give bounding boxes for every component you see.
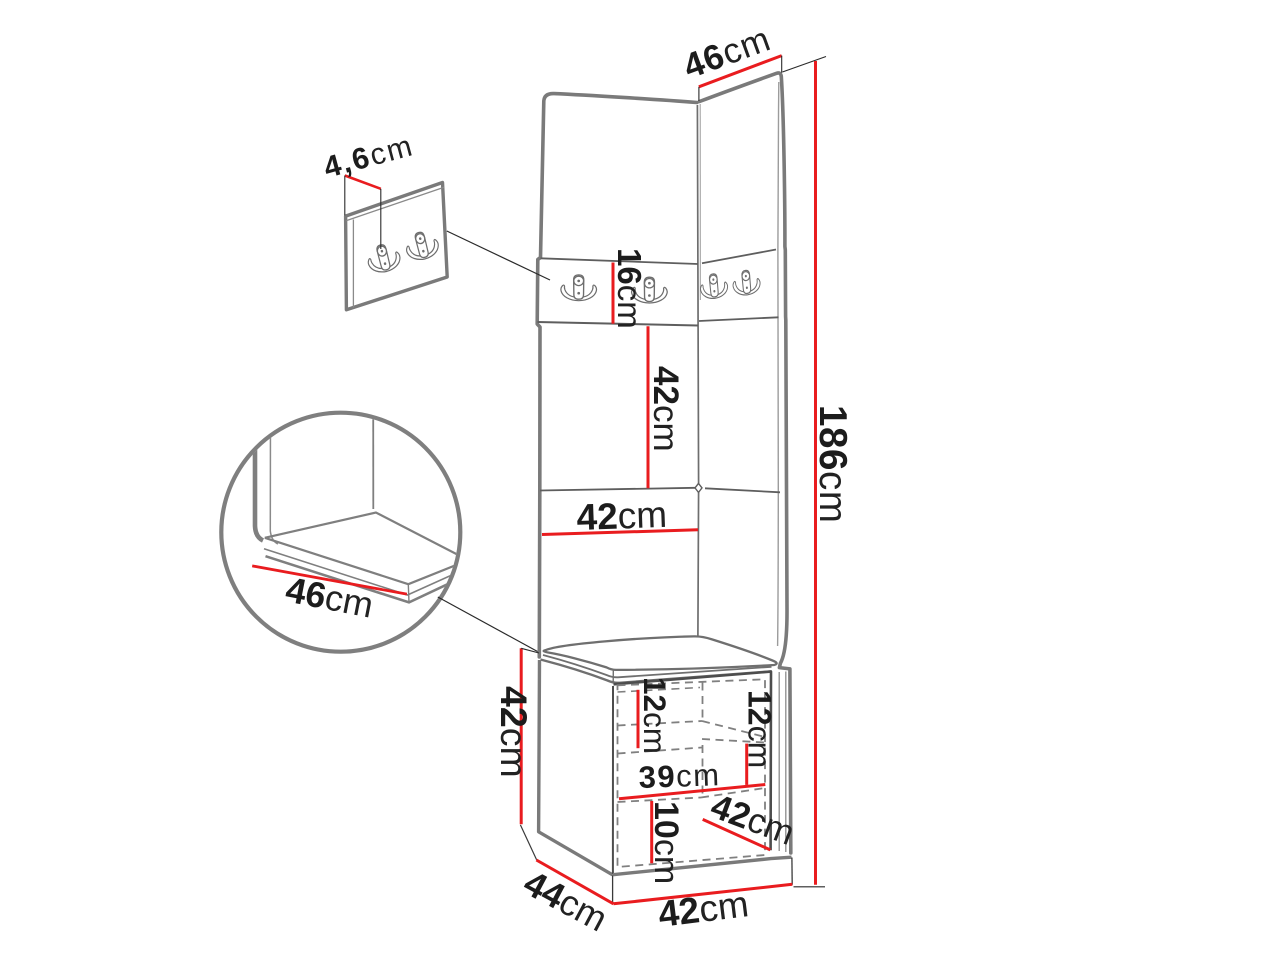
svg-text:12cm: 12cm [637, 677, 673, 754]
svg-text:42cm: 42cm [646, 366, 685, 452]
svg-text:16cm: 16cm [611, 248, 648, 329]
svg-text:12cm: 12cm [742, 690, 778, 768]
svg-text:42cm: 42cm [493, 686, 535, 778]
svg-text:10cm: 10cm [647, 801, 685, 884]
svg-text:186cm: 186cm [811, 405, 854, 524]
svg-text:39cm: 39cm [638, 757, 721, 795]
svg-text:42cm: 42cm [576, 494, 668, 538]
